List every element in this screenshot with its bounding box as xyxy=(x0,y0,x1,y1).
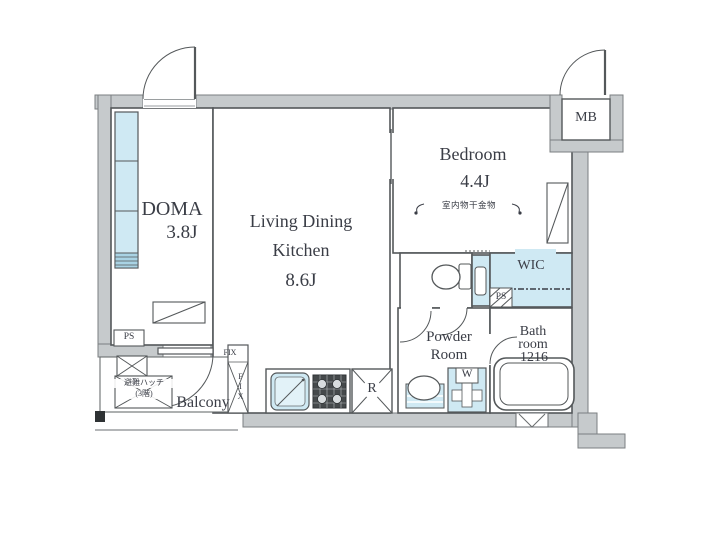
bedroom-closet xyxy=(547,183,568,243)
ps-label-wic: PS xyxy=(491,292,511,302)
ldk-size-label: 8.6J xyxy=(230,271,372,292)
powder-door-opening xyxy=(401,305,432,312)
wall-top xyxy=(196,95,550,109)
balcony-door-leaf xyxy=(158,348,213,354)
powder-label-line1: Powder xyxy=(404,329,494,345)
bath-window xyxy=(516,413,548,427)
fix-label-vertical: FIX xyxy=(232,364,244,410)
wic-label: WIC xyxy=(490,258,572,273)
wic-opening xyxy=(515,249,556,257)
fix-label-horizontal: FIX xyxy=(213,349,247,358)
balcony-drain xyxy=(95,411,105,422)
mb-label: MB xyxy=(562,110,610,125)
laundry-hardware-note: 室内物干金物 xyxy=(408,201,530,210)
evacuation-hatch-label-line2: (3階) xyxy=(122,390,166,399)
powder-label-line2: Room xyxy=(404,347,494,363)
ps-label-balcony: PS xyxy=(115,332,143,342)
floor-plan-drawing xyxy=(0,0,720,535)
ldk-label-line2: Kitchen xyxy=(230,241,372,260)
bedroom-size-label: 4.4J xyxy=(414,172,536,191)
doma-size-label: 3.8J xyxy=(132,223,232,244)
wall-left xyxy=(98,95,111,357)
doma-label: DOMA xyxy=(122,199,222,221)
bedroom-label: Bedroom xyxy=(412,145,534,164)
shoe-cabinet xyxy=(115,112,138,268)
floor-plan: DOMA 3.8J Living Dining Kitchen 8.6J Bed… xyxy=(0,0,720,535)
ldk-label-line1: Living Dining xyxy=(230,212,372,231)
doma-counter xyxy=(153,302,205,323)
stove xyxy=(313,375,346,408)
evacuation-hatch-label-line1: 避難ハッチ xyxy=(114,379,174,388)
kitchen-counter xyxy=(266,369,350,413)
bath-size-label: 1216 xyxy=(496,350,572,365)
refrigerator-label: R xyxy=(358,381,386,396)
bathtub xyxy=(494,358,574,410)
kitchen-sink xyxy=(271,373,309,410)
toilet-door-opening xyxy=(440,305,467,312)
washer-label: W xyxy=(455,368,479,380)
mb-wall-bottom xyxy=(550,140,623,152)
wall-bottom-right-h xyxy=(578,434,625,448)
